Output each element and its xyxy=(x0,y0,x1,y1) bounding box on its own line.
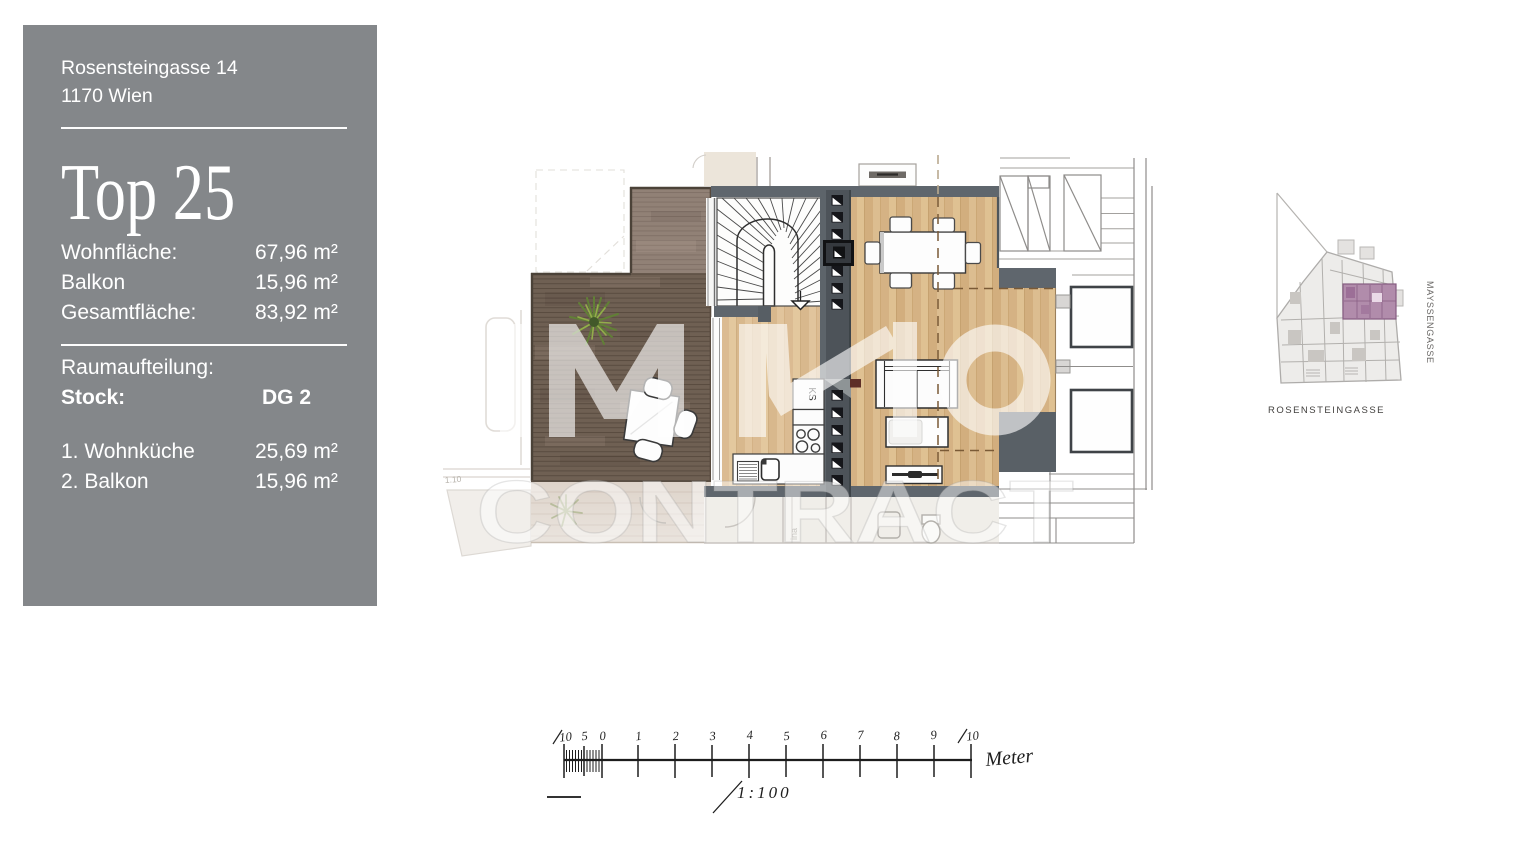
svg-text:4: 4 xyxy=(746,728,753,742)
svg-text:1.10: 1.10 xyxy=(444,474,461,485)
svg-text:Meter: Meter xyxy=(984,745,1035,771)
svg-text:10: 10 xyxy=(966,728,981,743)
svg-text:9: 9 xyxy=(930,728,938,743)
svg-text:6: 6 xyxy=(820,728,828,742)
svg-text:5: 5 xyxy=(783,729,790,743)
svg-text:5: 5 xyxy=(581,729,588,743)
svg-text:ROSENSTEINGASSE: ROSENSTEINGASSE xyxy=(1268,405,1385,416)
svg-text:1:100: 1:100 xyxy=(737,783,792,802)
svg-text:3: 3 xyxy=(708,729,716,744)
svg-text:2: 2 xyxy=(672,729,679,743)
svg-text:8: 8 xyxy=(893,729,901,743)
svg-text:MAYSSENGASSE: MAYSSENGASSE xyxy=(1425,281,1435,364)
svg-text:1: 1 xyxy=(635,729,643,744)
svg-text:0: 0 xyxy=(599,729,607,744)
svg-text:7: 7 xyxy=(857,728,865,743)
svg-text:CONTRACT: CONTRACT xyxy=(476,462,1074,560)
